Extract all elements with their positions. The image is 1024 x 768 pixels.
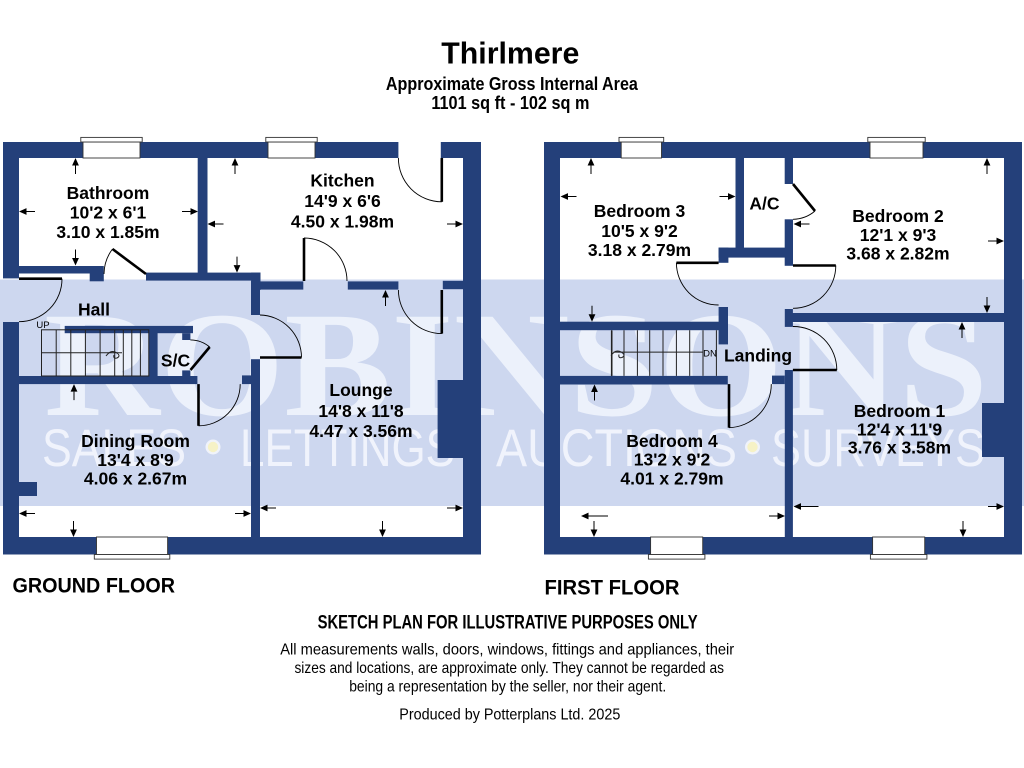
svg-text:3.10 x 1.85m: 3.10 x 1.85m bbox=[56, 222, 159, 242]
svg-text:14'8 x 11'8: 14'8 x 11'8 bbox=[318, 401, 403, 421]
svg-text:1101 sq ft - 102 sq m: 1101 sq ft - 102 sq m bbox=[431, 93, 589, 113]
svg-text:12'4 x 11'9: 12'4 x 11'9 bbox=[857, 420, 942, 440]
svg-text:4.50 x 1.98m: 4.50 x 1.98m bbox=[291, 212, 394, 232]
svg-text:DN: DN bbox=[703, 349, 717, 360]
svg-text:13'2 x 9'2: 13'2 x 9'2 bbox=[634, 450, 711, 470]
svg-text:Bedroom 1: Bedroom 1 bbox=[854, 401, 946, 421]
svg-text:Landing: Landing bbox=[724, 346, 792, 366]
svg-text:Hall: Hall bbox=[78, 300, 110, 320]
svg-text:Bedroom 2: Bedroom 2 bbox=[852, 206, 944, 226]
svg-text:All measurements walls, doors,: All measurements walls, doors, windows, … bbox=[280, 642, 735, 659]
svg-text:Bedroom 4: Bedroom 4 bbox=[626, 431, 718, 451]
svg-text:Approximate Gross Internal Are: Approximate Gross Internal Area bbox=[386, 74, 639, 94]
svg-text:10'2 x 6'1: 10'2 x 6'1 bbox=[70, 203, 147, 223]
svg-text:SKETCH PLAN FOR ILLUSTRATIVE P: SKETCH PLAN FOR ILLUSTRATIVE PURPOSES ON… bbox=[318, 613, 698, 634]
svg-text:4.06 x 2.67m: 4.06 x 2.67m bbox=[84, 469, 187, 489]
svg-text:4.47 x 3.56m: 4.47 x 3.56m bbox=[309, 421, 412, 441]
svg-text:3.68 x 2.82m: 3.68 x 2.82m bbox=[846, 244, 949, 264]
svg-text:Dining Room: Dining Room bbox=[81, 431, 190, 451]
svg-text:GROUND FLOOR: GROUND FLOOR bbox=[13, 575, 176, 598]
svg-text:Lounge: Lounge bbox=[329, 380, 392, 400]
svg-text:14'9 x 6'6: 14'9 x 6'6 bbox=[304, 191, 381, 211]
svg-text:A/C: A/C bbox=[749, 194, 780, 214]
svg-text:being a representation by the: being a representation by the seller, no… bbox=[349, 679, 666, 696]
svg-text:10'5 x 9'2: 10'5 x 9'2 bbox=[601, 221, 678, 241]
svg-text:S/C: S/C bbox=[161, 351, 191, 371]
svg-text:3.18 x 2.79m: 3.18 x 2.79m bbox=[588, 240, 691, 260]
svg-text:Kitchen: Kitchen bbox=[310, 171, 374, 191]
svg-text:FIRST FLOOR: FIRST FLOOR bbox=[545, 577, 680, 600]
svg-text:UP: UP bbox=[36, 320, 49, 331]
svg-text:Thirlmere: Thirlmere bbox=[441, 37, 579, 71]
svg-text:4.01 x 2.79m: 4.01 x 2.79m bbox=[620, 469, 723, 489]
svg-text:Bathroom: Bathroom bbox=[67, 183, 150, 203]
svg-text:13'4 x 8'9: 13'4 x 8'9 bbox=[97, 450, 174, 470]
svg-text:12'1 x 9'3: 12'1 x 9'3 bbox=[860, 225, 937, 245]
svg-text:Bedroom 3: Bedroom 3 bbox=[594, 201, 686, 221]
svg-text:3.76 x 3.58m: 3.76 x 3.58m bbox=[848, 438, 951, 458]
svg-text:sizes and locations, are appro: sizes and locations, are approximate onl… bbox=[294, 660, 724, 677]
svg-text:Produced by Potterplans Ltd. 2: Produced by Potterplans Ltd. 2025 bbox=[399, 707, 620, 724]
